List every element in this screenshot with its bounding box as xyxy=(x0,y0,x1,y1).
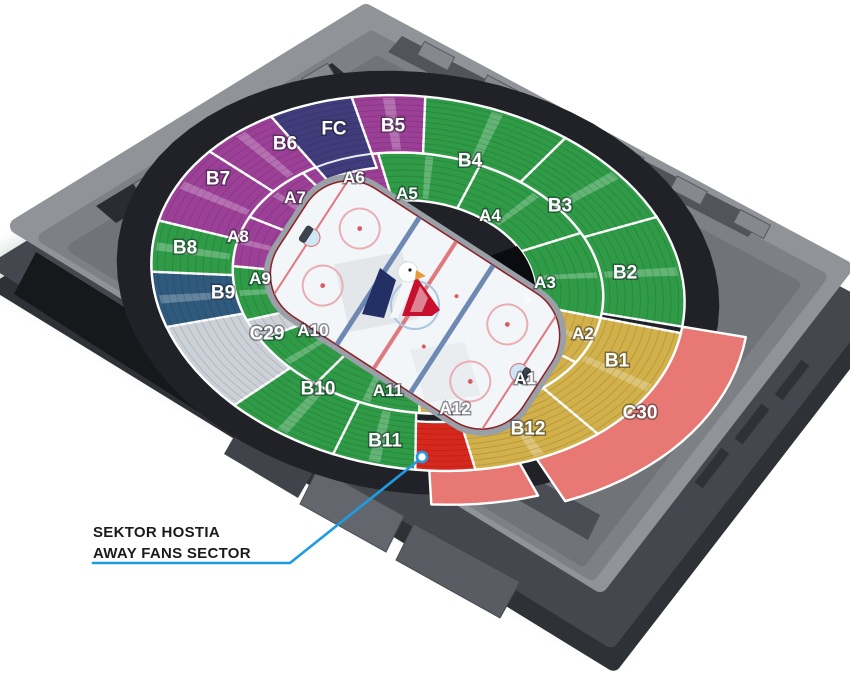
callout-line-2: AWAY FANS SECTOR xyxy=(93,543,251,564)
sector-label-B3: B3 xyxy=(548,196,572,217)
sector-label-B9: B9 xyxy=(211,283,235,304)
callout-line-1: SEKTOR HOSTIA xyxy=(93,522,251,543)
sector-label-C30: C30 xyxy=(623,403,658,424)
sector-label-A9: A9 xyxy=(249,269,271,288)
sector-label-B5: B5 xyxy=(381,116,406,137)
sector-label-A12: A12 xyxy=(439,399,470,418)
sector-label-A4: A4 xyxy=(479,206,501,225)
sector-label-B2: B2 xyxy=(613,263,637,284)
sector-label-FC: FC xyxy=(321,119,347,140)
sector-label-B10: B10 xyxy=(301,379,336,400)
wheelchair-icon: ♿ xyxy=(522,292,534,307)
sector-label-A3: A3 xyxy=(534,273,556,292)
sector-label-B1: B1 xyxy=(605,351,630,372)
sector-label-A1: A1 xyxy=(514,369,536,388)
sector-label-B4: B4 xyxy=(458,151,483,172)
sector-label-A8: A8 xyxy=(227,227,249,246)
arena-seating-map: ♿C30C29A2A1A12A11A10A9A8A7A6A5A4A3B1B12B… xyxy=(0,0,850,694)
sector-label-A10: A10 xyxy=(297,321,328,340)
sector-label-C29: C29 xyxy=(250,324,285,345)
callout-marker xyxy=(417,452,427,462)
sector-label-A6: A6 xyxy=(343,168,365,187)
sector-label-B6: B6 xyxy=(273,134,297,155)
sector-label-B11: B11 xyxy=(368,431,402,452)
sector-label-A7: A7 xyxy=(284,188,306,207)
sector-label-B12: B12 xyxy=(511,419,546,440)
sector-label-A5: A5 xyxy=(396,184,418,203)
sector-label-B8: B8 xyxy=(173,238,197,259)
away-sector-callout: SEKTOR HOSTIA AWAY FANS SECTOR xyxy=(93,522,251,564)
sector-label-A11: A11 xyxy=(373,381,403,400)
sector-label-B7: B7 xyxy=(206,169,230,190)
sector-label-A2: A2 xyxy=(572,324,594,343)
